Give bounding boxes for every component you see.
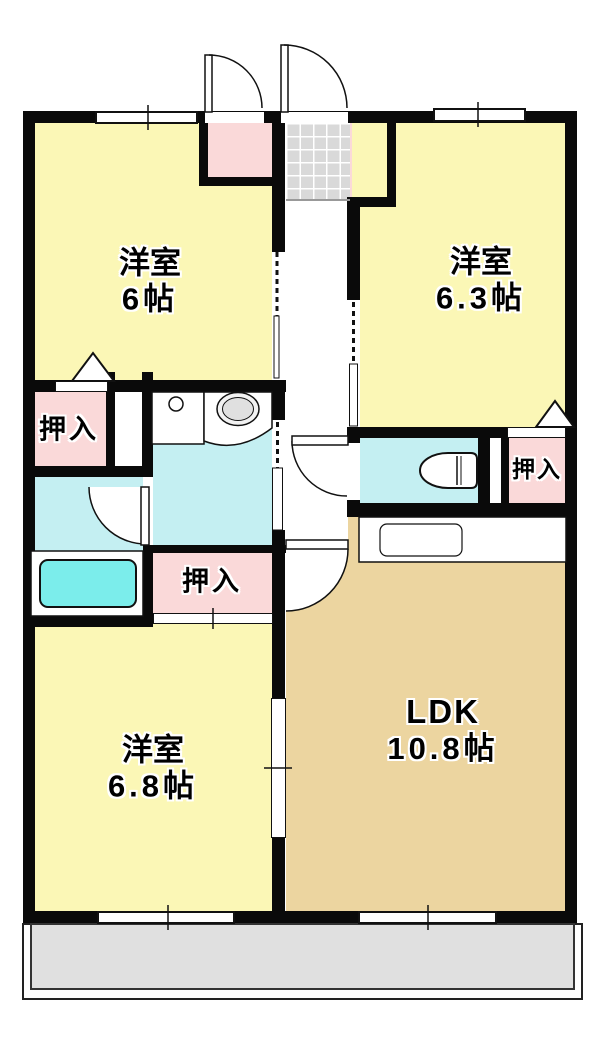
closet-right-door: [507, 427, 566, 438]
wall-toilet-south: [347, 503, 566, 517]
closet-center-label: 押入: [182, 566, 242, 597]
room6-door-opening: [272, 252, 285, 380]
bathtub: [31, 551, 143, 616]
entry-door-left: [205, 55, 262, 112]
toilet-floor: [360, 438, 478, 503]
wall-entry-closet-bottom: [199, 177, 272, 186]
wall-right: [565, 111, 577, 923]
window-top-left: [95, 111, 198, 124]
wall-entry-closet-left: [199, 112, 208, 186]
balcony: [30, 923, 575, 990]
closet-left-label: 押入: [39, 414, 99, 445]
wall-shaft-left: [478, 437, 490, 503]
entry-door-right-opening: [281, 112, 348, 123]
wall-ps-right: [142, 372, 153, 477]
wall-washroom-south: [143, 545, 286, 553]
entrance-closet-left-floor: [208, 123, 272, 177]
floor-plan: 洋室 6帖 洋室 6.3帖 洋室 6.8帖 LDK 10.8帖 押入 押入 押入: [0, 0, 605, 1041]
room63-door-opening: [347, 300, 360, 427]
washroom-floor: [153, 392, 272, 545]
wall-bath-south: [23, 615, 153, 627]
genkan-tile-floor: [286, 123, 350, 200]
wall-closet-left-bottom: [23, 466, 153, 477]
toilet-door-opening: [347, 443, 360, 500]
window-top-right: [433, 108, 526, 122]
room-west-63-label: 洋室 6.3帖: [436, 244, 526, 315]
washroom-door-opening: [272, 420, 285, 530]
room-west-68-label: 洋室 6.8帖: [108, 732, 198, 803]
closet-left-door: [55, 381, 108, 392]
wall-left: [23, 111, 35, 923]
toilet-door: [292, 436, 348, 496]
ldk-label: LDK 10.8帖: [387, 693, 498, 767]
closet-right-label: 押入: [512, 456, 562, 482]
closet-center-door: [153, 613, 273, 624]
ldk-floor-left: [286, 549, 348, 911]
room68-sliding-door: [271, 698, 286, 838]
window-bottom-right: [358, 911, 497, 924]
entry-door-right: [281, 45, 347, 112]
wall-shaft-right: [501, 437, 509, 503]
room-west-6-label: 洋室 6帖: [119, 245, 181, 316]
bathroom-floor: [35, 477, 143, 551]
entry-door-left-opening: [205, 112, 264, 123]
wall-entry-closet-right: [387, 111, 396, 207]
window-bottom-left: [97, 911, 235, 924]
